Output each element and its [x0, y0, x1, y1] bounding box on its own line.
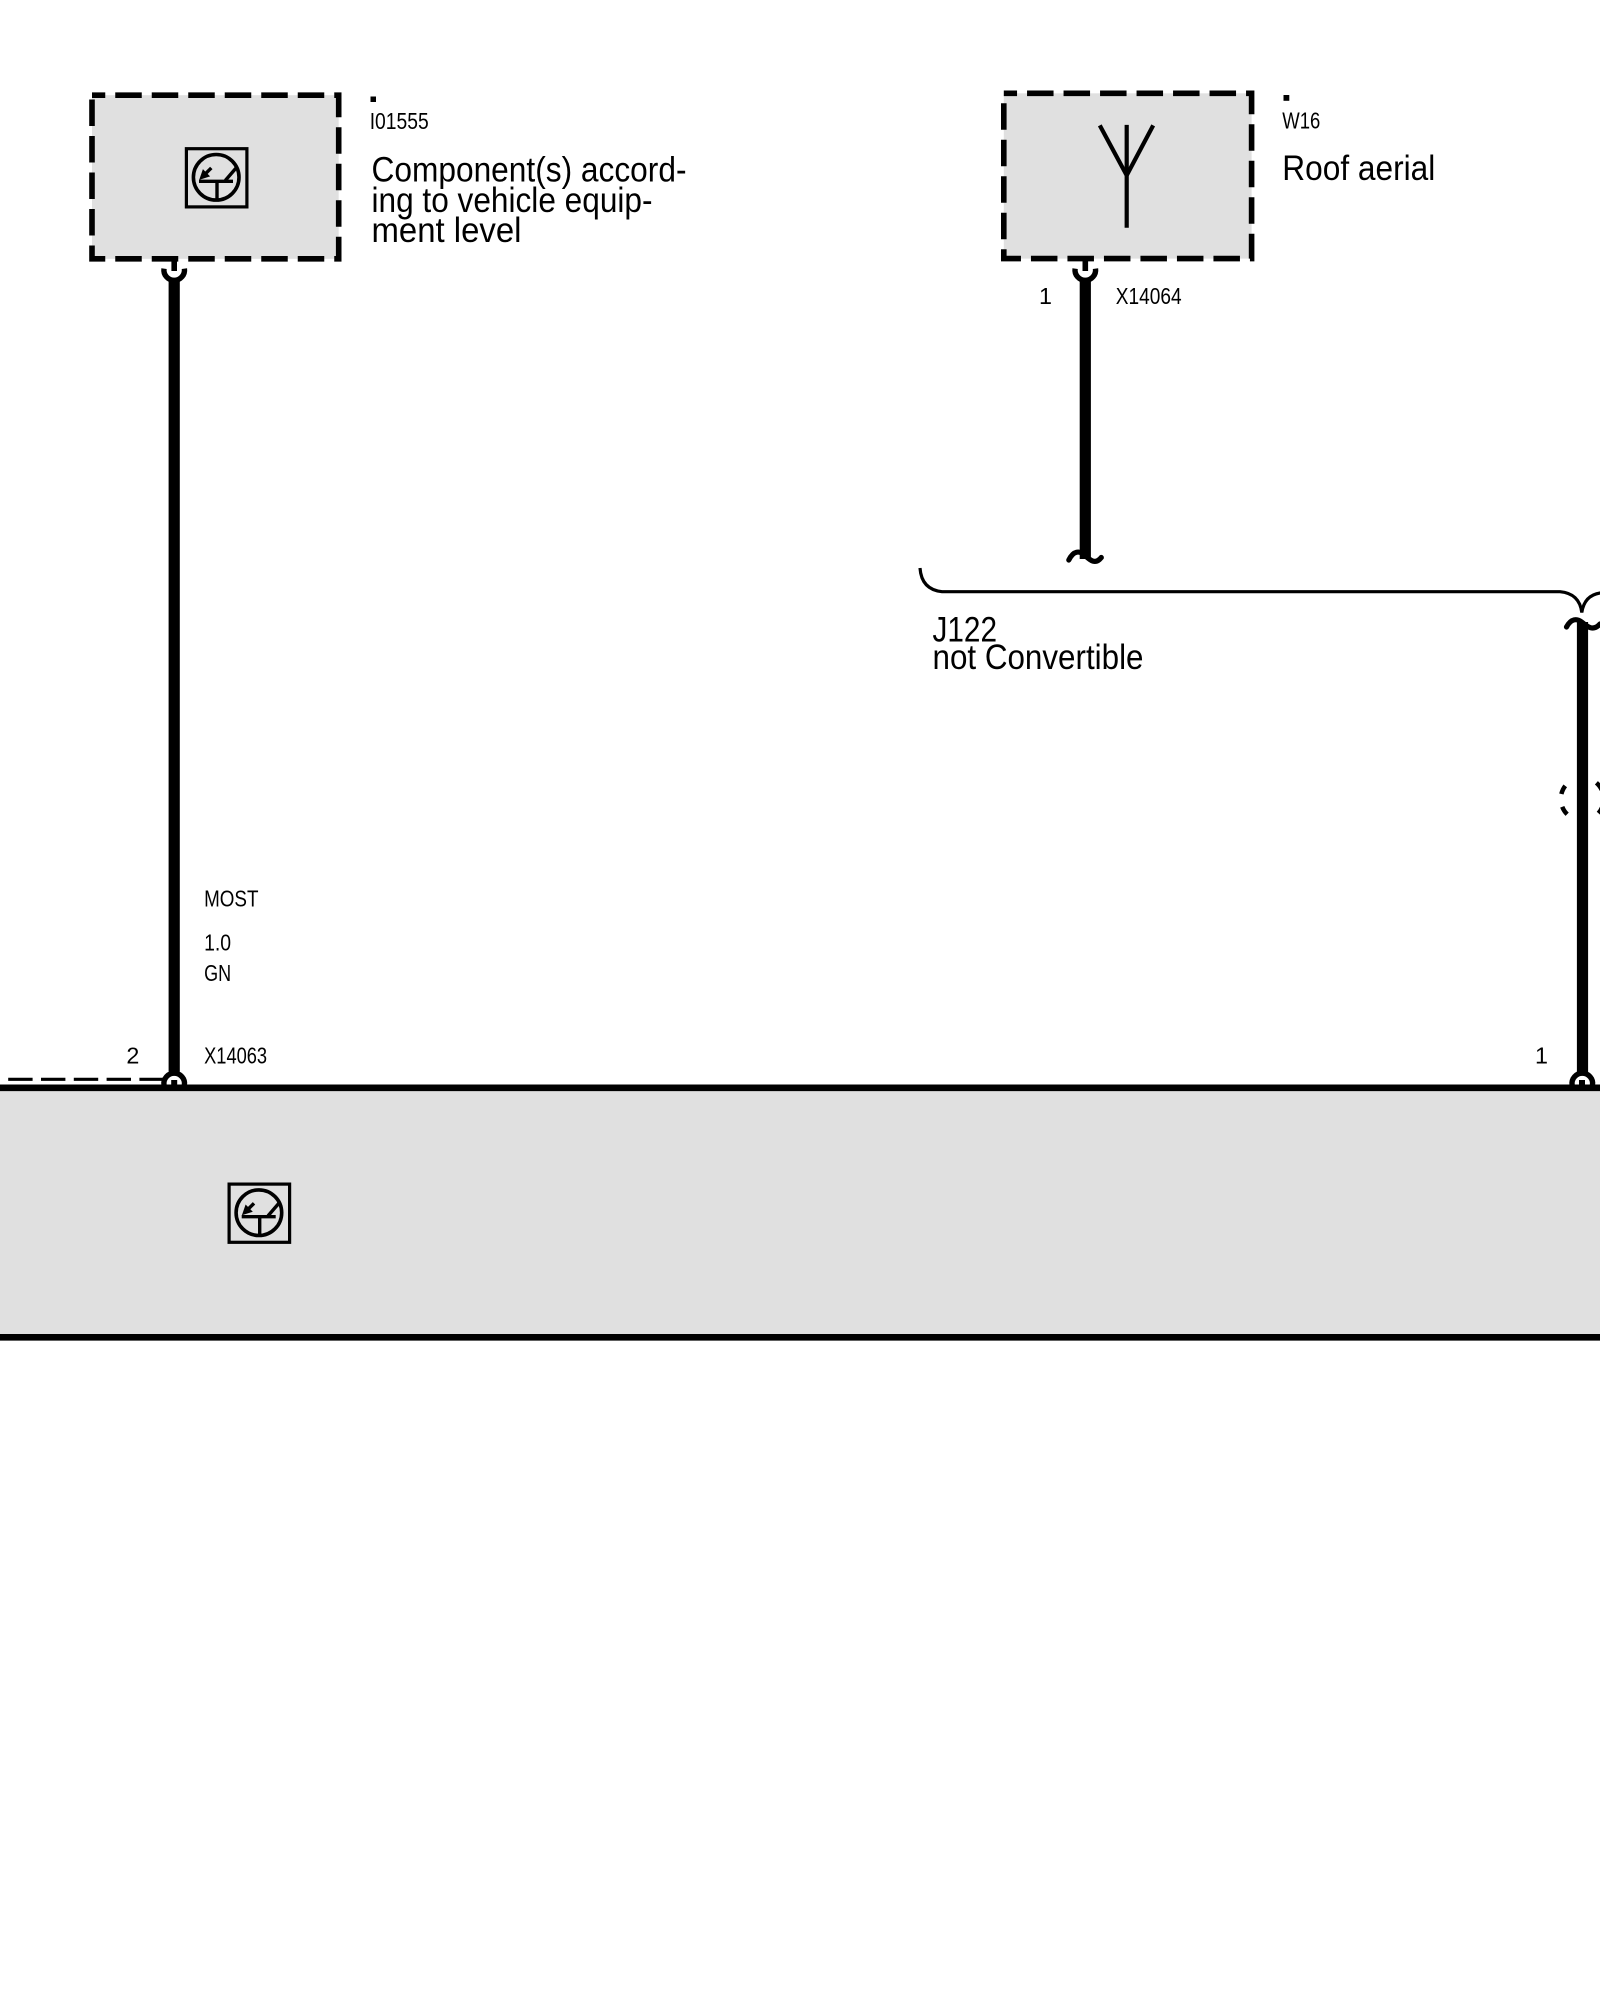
svg-text:not Convertible: not Convertible: [933, 637, 1144, 677]
svg-text:ment level: ment level: [372, 210, 522, 250]
svg-text:W16: W16: [1282, 108, 1320, 134]
svg-text:1: 1: [1039, 283, 1052, 309]
svg-text:2: 2: [126, 1043, 139, 1069]
svg-text:MOST: MOST: [204, 885, 258, 911]
svg-text:X14063: X14063: [204, 1043, 267, 1069]
svg-text:1.0: 1.0: [204, 930, 231, 956]
svg-text:I01555: I01555: [370, 108, 429, 134]
svg-text:GN: GN: [204, 960, 231, 986]
svg-text:Roof aerial: Roof aerial: [1282, 148, 1435, 188]
svg-text:1: 1: [1535, 1043, 1548, 1069]
svg-text:X14064: X14064: [1116, 283, 1182, 309]
